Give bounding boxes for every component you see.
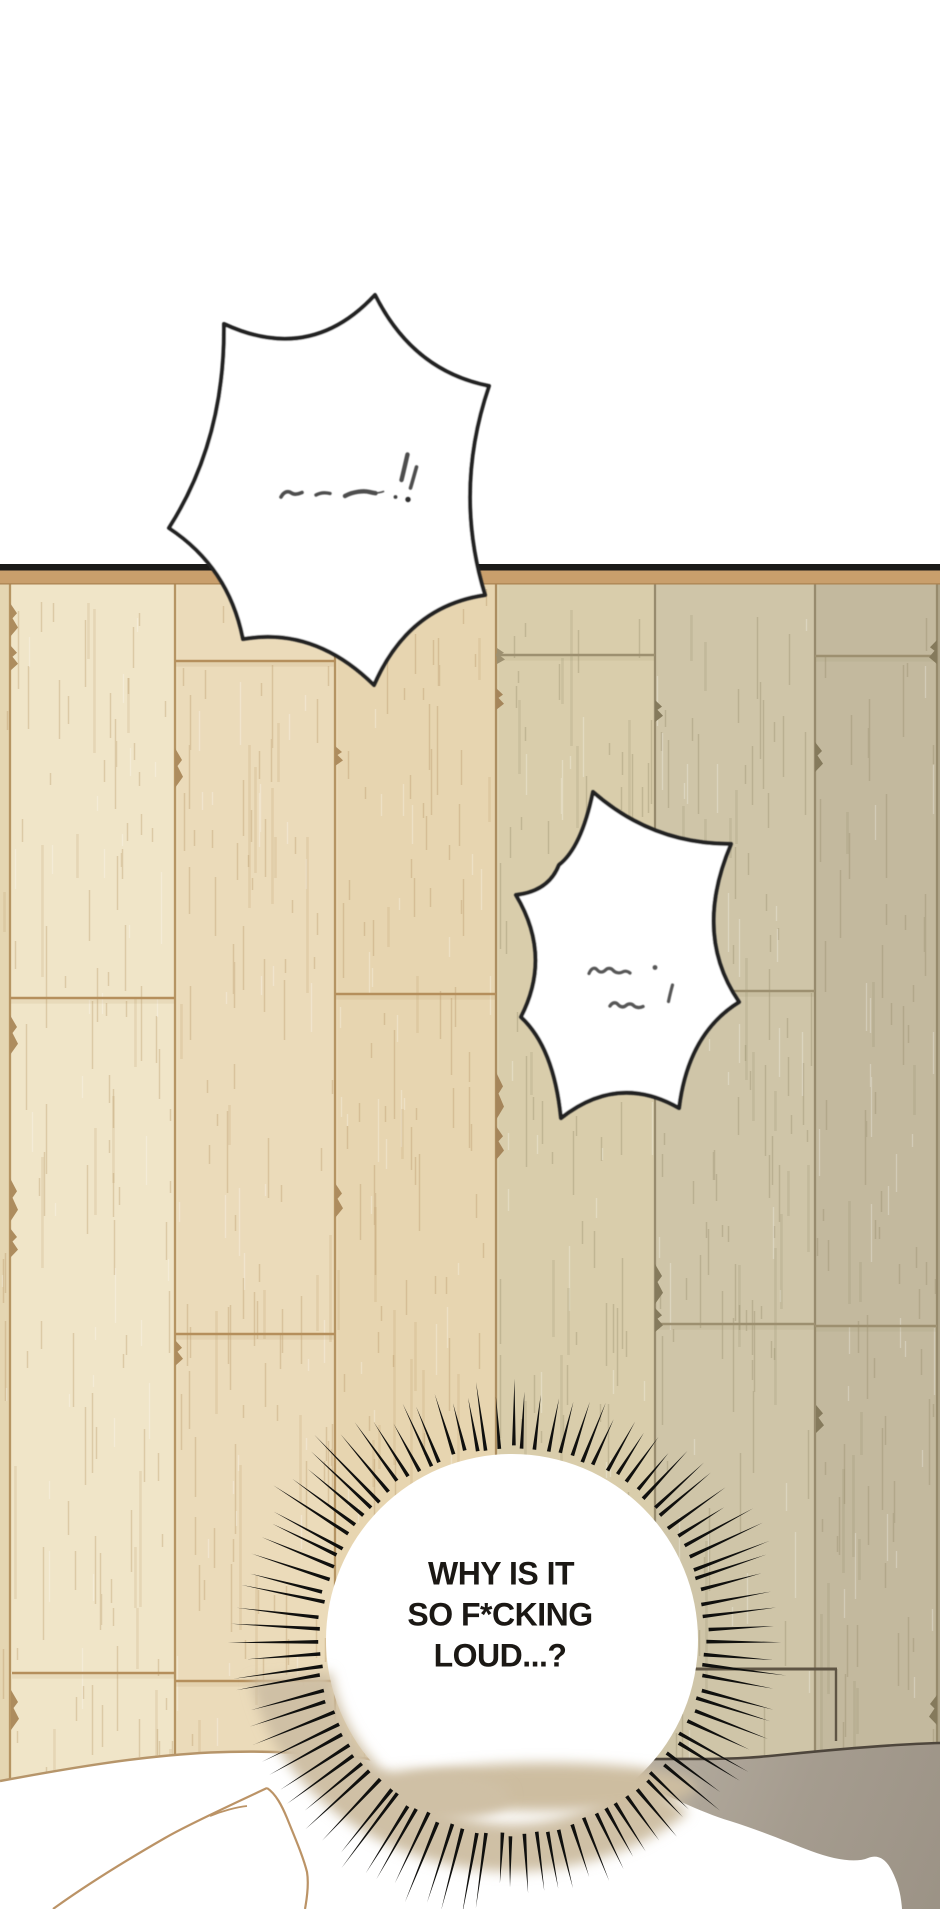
svg-text:SO F*CKING: SO F*CKING: [407, 1597, 592, 1633]
svg-text:WHY IS IT: WHY IS IT: [428, 1556, 575, 1592]
svg-text:LOUD...?: LOUD...?: [434, 1638, 567, 1674]
